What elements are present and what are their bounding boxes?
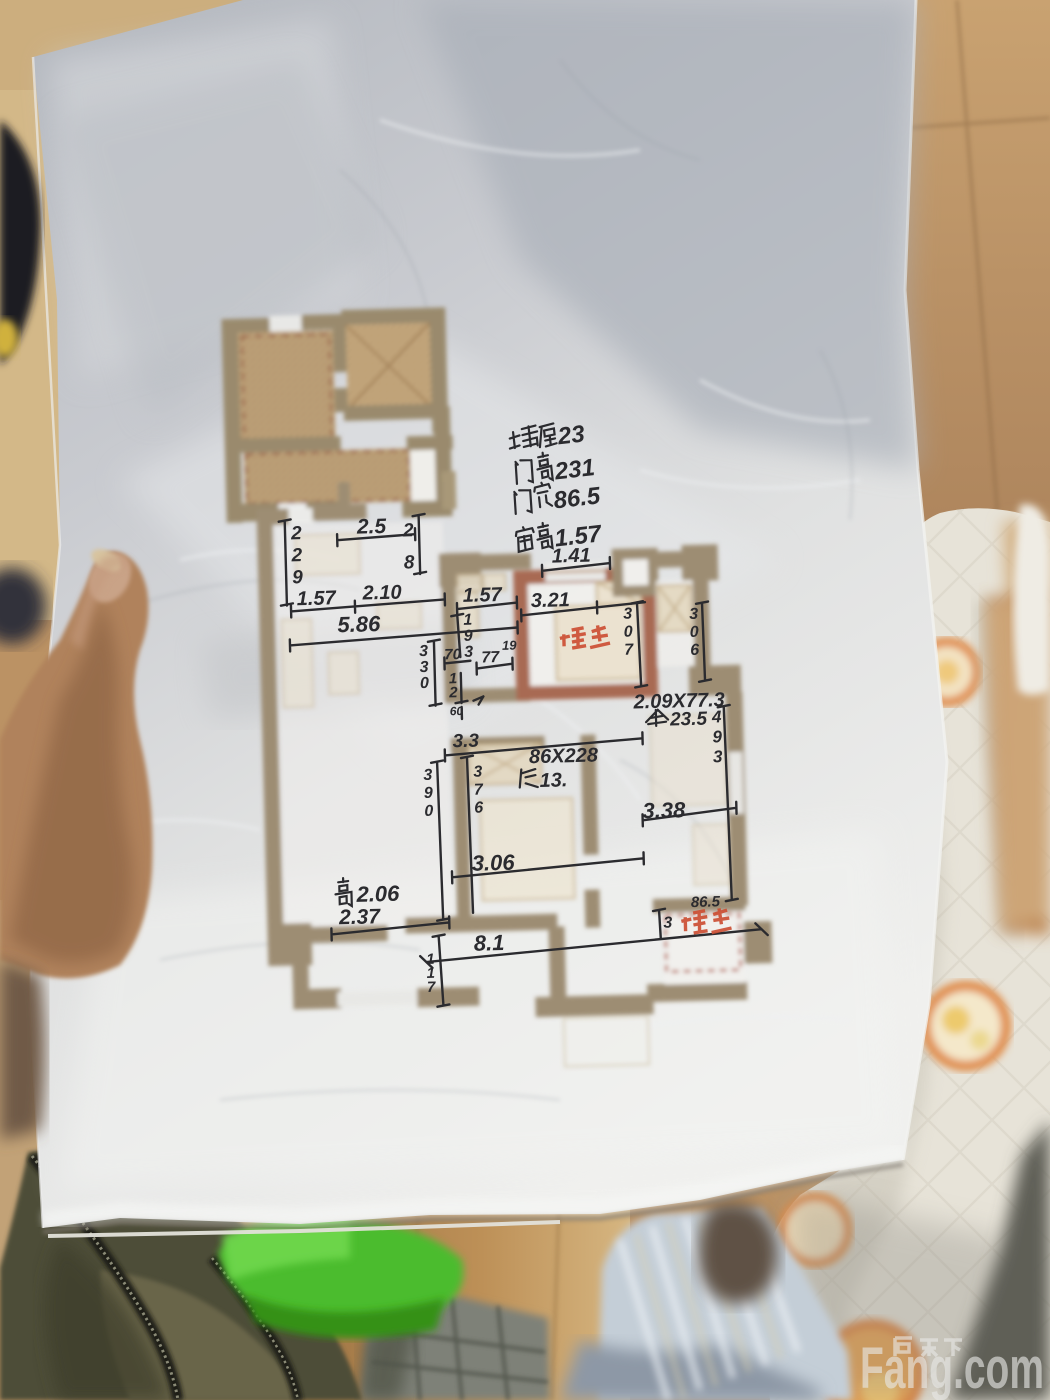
svg-text:7: 7: [427, 979, 436, 996]
svg-text:7: 7: [624, 641, 634, 658]
svg-text:1.57: 1.57: [462, 584, 502, 607]
svg-text:2: 2: [290, 523, 303, 544]
svg-text:3.3: 3.3: [452, 731, 479, 753]
svg-text:1: 1: [463, 612, 472, 629]
svg-text:7: 7: [474, 781, 484, 798]
svg-text:1.57: 1.57: [553, 520, 604, 552]
svg-text:13.: 13.: [539, 769, 567, 792]
svg-text:86.5: 86.5: [691, 893, 721, 911]
svg-text:6: 6: [474, 799, 483, 816]
svg-text:2: 2: [448, 684, 458, 701]
svg-text:2.37: 2.37: [338, 905, 382, 929]
svg-text:6: 6: [690, 642, 699, 659]
svg-text:8: 8: [404, 552, 416, 573]
svg-text:3: 3: [713, 747, 723, 766]
svg-text:23: 23: [555, 420, 586, 450]
svg-text:9: 9: [712, 727, 722, 746]
svg-text:3: 3: [419, 643, 428, 660]
svg-text:86.5: 86.5: [552, 482, 602, 514]
svg-text:3.21: 3.21: [531, 589, 571, 612]
svg-text:0: 0: [424, 803, 433, 820]
svg-text:2: 2: [290, 545, 303, 566]
svg-text:3: 3: [663, 915, 672, 932]
svg-text:9: 9: [292, 567, 304, 588]
svg-text:3.06: 3.06: [471, 850, 515, 876]
svg-text:2.10: 2.10: [361, 582, 401, 605]
svg-text:0: 0: [420, 675, 429, 692]
svg-text:8.1: 8.1: [474, 930, 505, 956]
svg-text:4: 4: [711, 707, 722, 726]
svg-text:2.5: 2.5: [356, 515, 387, 539]
svg-text:0: 0: [690, 624, 699, 641]
svg-text:86X228: 86X228: [529, 744, 599, 768]
svg-text:2: 2: [402, 520, 415, 541]
svg-text:77: 77: [481, 649, 500, 666]
svg-text:3: 3: [623, 606, 632, 623]
svg-text:3: 3: [473, 763, 482, 780]
svg-text:3: 3: [423, 767, 432, 784]
svg-text:3: 3: [689, 606, 698, 623]
svg-text:23.5: 23.5: [669, 709, 708, 731]
svg-text:9: 9: [424, 785, 433, 802]
svg-text:1.57: 1.57: [296, 587, 336, 610]
svg-text:19: 19: [502, 638, 518, 653]
svg-text:9: 9: [464, 628, 473, 645]
svg-text:70: 70: [444, 646, 462, 663]
svg-text:3.38: 3.38: [642, 797, 686, 823]
svg-text:60: 60: [450, 704, 464, 718]
svg-text:5.86: 5.86: [337, 611, 381, 637]
svg-text:3: 3: [419, 659, 428, 676]
svg-text:3: 3: [464, 644, 473, 661]
svg-text:0: 0: [624, 623, 633, 640]
svg-text:231: 231: [552, 454, 596, 485]
svg-text:2.06: 2.06: [355, 881, 400, 907]
